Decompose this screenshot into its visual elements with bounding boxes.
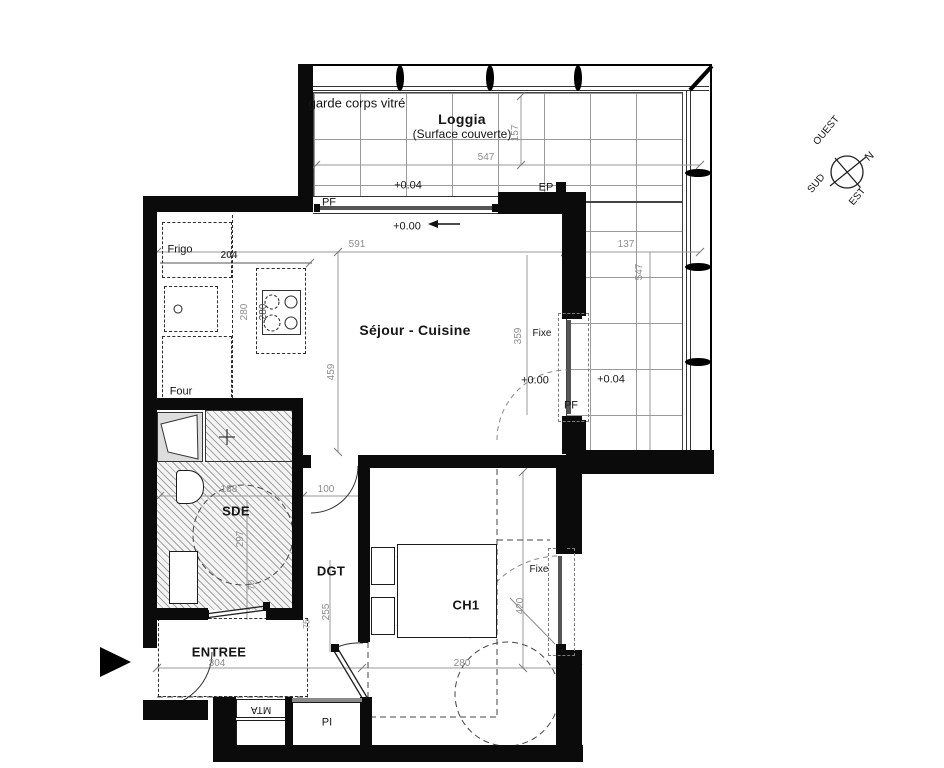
wall-sejour-right-bottom	[562, 420, 586, 454]
dim-loggia-right-width: 137	[618, 240, 635, 250]
fridge-label: Frigo	[167, 245, 192, 256]
room-label-sde: SDE	[222, 505, 250, 518]
wall-dgt-jamb	[303, 455, 311, 468]
pf-right-label: PF	[564, 401, 578, 412]
oven-label: Four	[170, 387, 193, 398]
wall-ch1-top	[358, 455, 570, 468]
room-label-dgt: DGT	[317, 565, 345, 578]
sink-outline	[164, 286, 218, 332]
dim-dgt-height: 255	[322, 604, 332, 621]
dim-sejour-height: 459	[327, 364, 337, 381]
wall-sde-right	[292, 398, 303, 610]
mta-trap	[236, 720, 286, 746]
wall-sde-top	[143, 398, 303, 410]
dim-entree-width: 304	[209, 659, 226, 669]
window-jamb	[556, 548, 566, 554]
floor-plan: garde corps vitré Loggia (Surface couver…	[0, 0, 944, 768]
window-jamb	[562, 314, 582, 319]
wall-top	[143, 196, 313, 212]
fixe-ch1-label: Fixe	[530, 565, 549, 575]
door-hinge	[202, 610, 209, 619]
dim-loggia-width: 547	[478, 153, 495, 163]
loggia-subtitle: (Surface couverte)	[413, 128, 512, 140]
level-sejour-right: +0.00	[521, 376, 549, 387]
wall-mta-right	[285, 697, 293, 747]
ep-label: EP	[539, 183, 554, 194]
railing-label: garde corps vitré	[309, 97, 406, 110]
wall-ep	[498, 192, 586, 214]
dim-kitchen-depth2: 280	[259, 304, 269, 321]
wall-loggia-bottom	[566, 450, 714, 474]
room-label-ch1: CH1	[453, 599, 480, 612]
wall-ch1-left	[358, 468, 370, 642]
wall-sejour-right-top	[562, 212, 586, 316]
wall-ch1-right-bottom	[556, 650, 582, 746]
room-label-loggia: Loggia	[438, 112, 486, 126]
level-sejour: +0.00	[393, 222, 421, 233]
dim-sde-door: 70	[248, 580, 257, 590]
nightstand	[371, 597, 395, 635]
level-loggia-right: +0.04	[597, 375, 625, 386]
dim-ch1-height: 420	[516, 598, 526, 615]
pi-label: PI	[322, 718, 332, 729]
wall-ch1-right-top	[556, 468, 582, 554]
fixe-sejour-label: Fixe	[533, 329, 552, 339]
dim-dgt-door: 100	[318, 485, 335, 495]
window-pf-top-glazing	[318, 206, 494, 210]
door-hinge	[360, 635, 368, 643]
dim-sde-height: 297	[236, 531, 246, 548]
wall-bottom	[213, 745, 583, 762]
dim-kitchen-depth: 280	[240, 304, 250, 321]
dim-sde-width: 188	[221, 485, 238, 495]
level-loggia: +0.04	[394, 181, 422, 192]
dim-ch1-width: 280	[454, 659, 471, 669]
mta-label: MTA	[251, 704, 271, 714]
wall-loggia-left	[298, 64, 313, 202]
compass-icon	[830, 156, 866, 188]
ep-marker	[556, 182, 566, 192]
dim-sejour-right: 359	[514, 328, 524, 345]
nightstand	[371, 547, 395, 585]
window-jamb	[562, 416, 582, 421]
window-pf-top	[313, 196, 498, 214]
bed	[397, 544, 497, 638]
window-pi-top	[292, 698, 362, 702]
dim-dgt-leaf: 75	[303, 619, 312, 629]
window-jamb	[556, 644, 566, 650]
room-label-entree: ENTREE	[192, 646, 247, 659]
pf-top-label: PF	[322, 198, 336, 209]
wall-sde-bottom-right	[266, 608, 303, 620]
door-jamb	[143, 642, 157, 648]
wall-entree-bottom	[143, 700, 208, 720]
dim-loggia-depth: 157	[511, 125, 521, 142]
dim-kitchen-width: 204	[221, 251, 238, 261]
wall-left	[143, 196, 157, 648]
door-hinge	[331, 644, 339, 652]
window-jamb	[492, 204, 498, 212]
entry-arrow-icon	[100, 647, 131, 677]
window-jamb	[314, 204, 320, 212]
dim-sejour-width: 591	[349, 240, 366, 250]
room-label-sejour: Séjour - Cuisine	[359, 323, 470, 337]
counter-edge	[232, 215, 233, 398]
window-fixe-ch1-glazing	[558, 556, 562, 648]
door-hinge	[263, 602, 270, 611]
dim-loggia-right-height: 547	[635, 264, 645, 281]
wall-sde-bottom-left	[157, 608, 208, 620]
washbasin	[169, 551, 198, 604]
